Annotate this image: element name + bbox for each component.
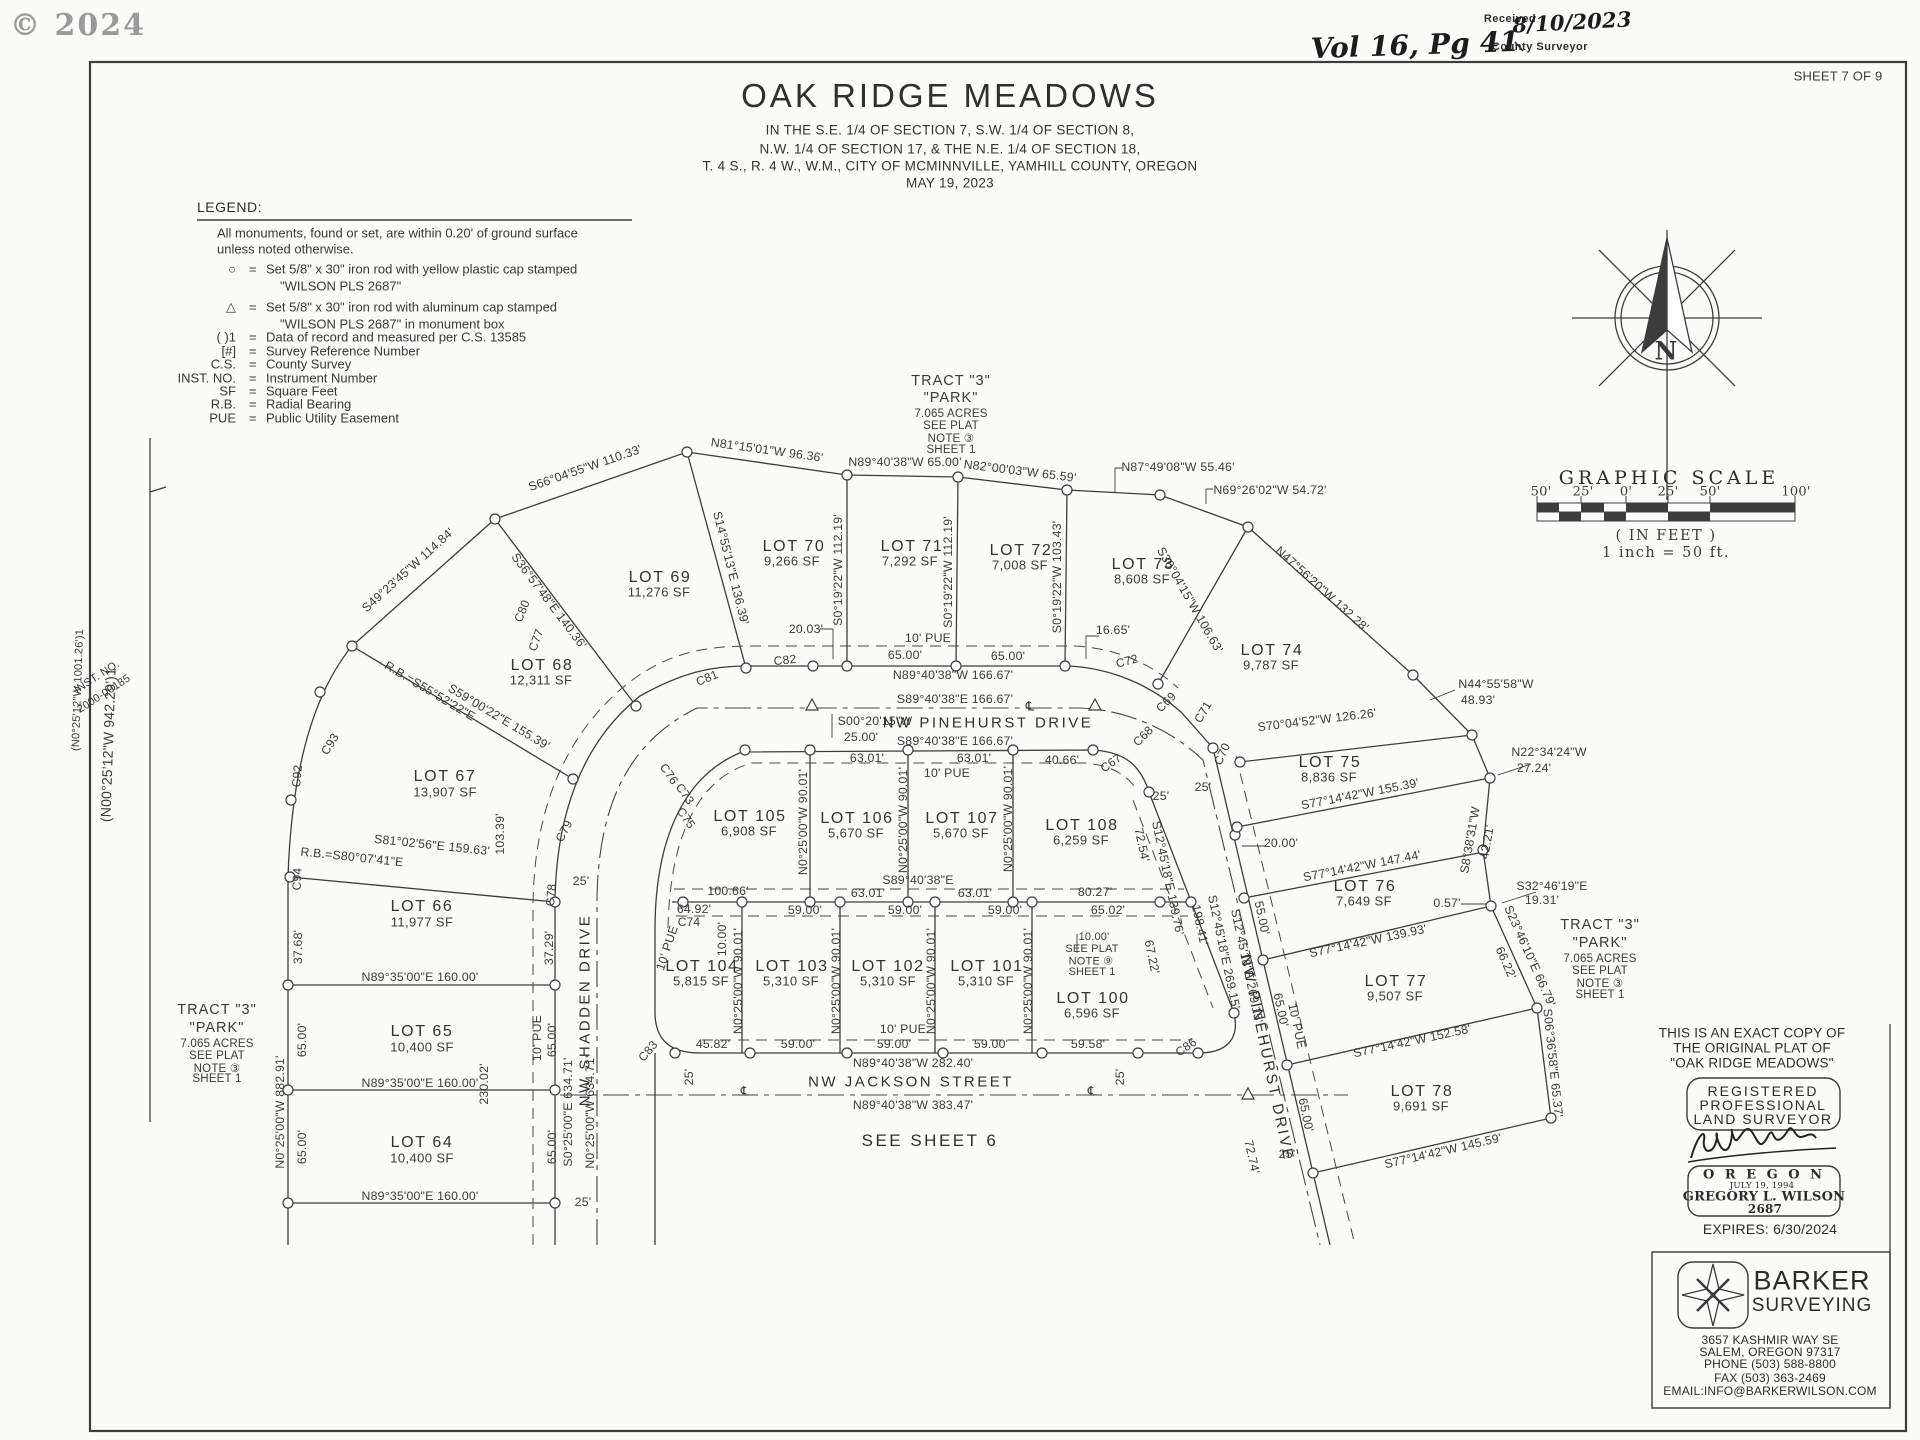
curve-label: C74: [678, 915, 701, 929]
lot-label: LOT 67: [414, 768, 477, 786]
dim-label: 63.01': [957, 751, 991, 765]
legend-eq: =: [249, 262, 257, 277]
bearing-label: N69°26'02"W 54.72': [1213, 483, 1326, 497]
tract-note: 7.065 ACRES: [180, 1038, 253, 1050]
tract-note: "PARK": [1573, 935, 1628, 951]
dim-label: 37.29': [542, 931, 556, 965]
scale-tick: 25': [1658, 485, 1679, 500]
legend-key: C.S.: [211, 357, 236, 372]
legend-symbol-triangle: △: [226, 299, 236, 315]
centerline-symbol: ℄: [1026, 700, 1035, 715]
centerline-symbol: ℄: [741, 1085, 750, 1100]
tract-note: TRACT "3": [177, 1002, 256, 1018]
compass-rose-icon: [1682, 1264, 1744, 1326]
lot-area: 13,907 SF: [413, 785, 477, 800]
dim-label: 20.03': [789, 622, 823, 636]
north-label: N: [1654, 337, 1677, 366]
tract-note: "PARK": [924, 390, 979, 406]
tract-note: TRACT "3": [911, 373, 990, 389]
bearing-label: S32°46'19"E: [1516, 879, 1587, 893]
bearing-label: N0°25'00"W 882.91': [273, 1055, 287, 1168]
bearing-label: N44°55'58"W: [1458, 677, 1533, 691]
lot-area: 6,259 SF: [1053, 833, 1109, 848]
scale-units: ( IN FEET ): [1616, 528, 1717, 544]
tract-note: 7.065 ACRES: [1563, 953, 1636, 965]
dim-label: 59.00': [974, 1037, 1008, 1051]
bearing-label: S0°19'22"W 103.43': [1050, 521, 1064, 634]
tract-note: SHEET 1: [192, 1073, 241, 1085]
dim-label: 25': [1195, 780, 1212, 794]
tract-note: 7.065 ACRES: [914, 408, 987, 420]
bearing-label: N89°40'38"W 166.67': [893, 668, 1013, 682]
dim-label: 59.00': [788, 903, 822, 917]
lot-area: 9,691 SF: [1393, 1099, 1449, 1114]
lot-area: 5,670 SF: [933, 826, 989, 841]
dim-label: 59.00': [888, 903, 922, 917]
plat-note9: SHEET 1: [1068, 966, 1115, 978]
bearing-label: N89°35'00"E 160.00': [362, 1076, 479, 1090]
legend-key: R.B.: [211, 397, 236, 412]
scale-tick: 100': [1781, 485, 1810, 500]
bearing-label: N0°25'00"W 90.01': [796, 769, 810, 875]
exact-copy-note: "OAK RIDGE MEADOWS": [1670, 1056, 1833, 1071]
lot-area: 5,310 SF: [860, 974, 916, 989]
title-subline: N.W. 1/4 OF SECTION 17, & THE N.E. 1/4 O…: [760, 142, 1141, 157]
exact-copy-note: THIS IS AN EXACT COPY OF: [1659, 1026, 1846, 1041]
scale-tick: 25': [1573, 485, 1594, 500]
dim-label: 45.82': [696, 1037, 730, 1051]
curve-label: C78: [543, 883, 559, 907]
bearing-label: N0°25'00"W 90.01': [1021, 928, 1035, 1034]
dim-label: 100.66': [707, 884, 748, 898]
dim-label: 65.00': [991, 649, 1025, 663]
dim-label: 10.00': [715, 922, 729, 956]
lot-area: 11,276 SF: [628, 585, 691, 600]
legend-symbol-circle: ○: [228, 262, 236, 277]
plat-note9: SEE PLAT: [1065, 943, 1118, 955]
pue-label: 10' PUE: [530, 1015, 544, 1061]
lot-area: 9,787 SF: [1243, 658, 1299, 673]
firm-name: SURVEYING: [1752, 1295, 1873, 1317]
tract-note: "PARK": [190, 1020, 245, 1036]
bearing-label: S0°19'22"W 112.19': [831, 514, 845, 626]
bearing-label: N89°35'00"E 160.00': [362, 1189, 479, 1203]
graphic-scale-bar: [1537, 496, 1795, 521]
dim-label: 65.00': [888, 648, 922, 662]
dim-label: 80.27': [1078, 885, 1112, 899]
bearing-label: N0°25'00"W 90.01': [924, 928, 938, 1034]
curve-label: C82: [773, 652, 797, 668]
legend-eq: =: [249, 357, 257, 372]
scale-tick: 50': [1700, 485, 1721, 500]
bearing-label: N0°25'00"W 90.01': [1001, 766, 1015, 872]
dim-label: 65.00': [545, 1023, 559, 1057]
curve-label: C92: [289, 764, 305, 788]
dim-label: 63.01': [851, 886, 885, 900]
legend-text: Set 5/8" x 30" iron rod with aluminum ca…: [266, 300, 557, 315]
bearing-label: S00°20'15"W: [838, 714, 913, 728]
lot-area: 5,815 SF: [673, 974, 729, 989]
legend-eq: =: [249, 397, 257, 412]
lot-area: 7,008 SF: [992, 558, 1048, 573]
exact-copy-note: THE ORIGINAL PLAT OF: [1673, 1041, 1831, 1056]
dim-label: 59.00': [877, 1037, 911, 1051]
legend-text: Data of record and measured per C.S. 135…: [266, 330, 526, 345]
bearing-label: S89°40'38"E 166.67': [897, 692, 1013, 706]
bearing-label: 48.93': [1461, 693, 1495, 707]
dim-label: 65.02': [1091, 903, 1125, 917]
legend-text: Set 5/8" x 30" iron rod with yellow plas…: [266, 262, 577, 277]
legend-text: Public Utility Easement: [266, 411, 399, 426]
legend-eq: =: [249, 300, 257, 315]
dim-label: 65.00': [295, 1023, 309, 1057]
dim-label: 25': [1279, 1147, 1296, 1161]
tract-note: NOTE ③: [1577, 976, 1624, 990]
bearing-label: S0°19'22"W 112.19': [941, 516, 955, 628]
dim-label: 59.00': [781, 1037, 815, 1051]
stamp-expires: EXPIRES: 6/30/2024: [1703, 1221, 1837, 1237]
lot-area: 6,908 SF: [721, 824, 777, 839]
lot-area: 6,596 SF: [1064, 1006, 1120, 1021]
dim-label: 65.00': [295, 1130, 309, 1164]
curve-label: C94: [290, 867, 305, 890]
lot-area: 5,310 SF: [763, 974, 819, 989]
firm-phone: PHONE (503) 588-8800: [1704, 1357, 1836, 1371]
dim-label: 25': [573, 874, 590, 888]
lot-label: LOT 66: [391, 898, 454, 916]
dim-label: 25': [1153, 789, 1170, 803]
plat-note9: 10.00': [1079, 931, 1110, 943]
bearing-label: S89°40'38"E: [882, 873, 953, 887]
dim-label: 65.00': [545, 1130, 559, 1164]
legend-key: ( )1: [217, 330, 237, 345]
lot-area: 11,977 SF: [391, 915, 454, 930]
stamp-number: 2687: [1748, 1202, 1782, 1216]
pue-label: 10' PUE: [880, 1022, 926, 1036]
legend-title: LEGEND:: [197, 199, 262, 215]
dim-label: 20.00': [1264, 836, 1298, 850]
legend-text: "WILSON PLS 2687": [280, 279, 401, 294]
bearing-label: 27.24': [1517, 761, 1551, 775]
copyright-watermark: © 2024: [10, 8, 146, 43]
legend-intro: unless noted otherwise.: [217, 242, 354, 257]
bearing-label: N87°49'08"W 55.46': [1121, 460, 1234, 474]
dim-label: 37.68': [291, 930, 305, 964]
bearing-label: N0°25'00"W 90.01': [829, 928, 843, 1034]
legend-text: County Survey: [266, 357, 351, 372]
bearing-label: S89°40'38"E 166.67': [897, 734, 1013, 748]
pue-label: 10' PUE: [924, 766, 970, 780]
dim-label: 25': [575, 1195, 592, 1209]
dim-label: 59.58': [1071, 1037, 1105, 1051]
plat-sheet: © 2024 Vol 16, Pg 41 Received 8/10/2023 …: [0, 0, 1920, 1440]
bearing-label: N0°25'00"W 90.01': [731, 928, 745, 1034]
lot-area: 10,400 SF: [390, 1040, 454, 1055]
dim-label: 19.31': [1525, 893, 1559, 907]
title-subline: MAY 19, 2023: [906, 176, 994, 191]
bearing-label: N0°25'00"W 90.01': [896, 767, 910, 873]
tract-note: SHEET 1: [1575, 989, 1624, 1001]
received-office: County Surveyor: [1492, 41, 1588, 53]
scale-tick: 0': [1620, 485, 1632, 500]
tract-note: NOTE ③: [928, 431, 975, 445]
pue-label: 10' PUE: [905, 631, 951, 645]
scale-tick: 50': [1531, 485, 1552, 500]
street-jackson: NW JACKSON STREET: [808, 1074, 1014, 1091]
lot-area: 7,292 SF: [882, 554, 938, 569]
legend-text: Radial Bearing: [266, 397, 351, 412]
bearing-label: N89°40'38"W 65.00': [848, 455, 961, 469]
dim-label: 16.65': [1096, 623, 1130, 637]
lot-area: 8,608 SF: [1114, 572, 1170, 587]
legend-key: PUE: [209, 411, 236, 426]
left-property-line: [150, 438, 166, 1122]
dim-label: 64.92': [677, 902, 711, 916]
street-pinehurst-top: NW PINEHURST DRIVE: [883, 715, 1094, 732]
sheet-number: SHEET 7 OF 9: [1794, 69, 1883, 84]
bearing-label: N89°40'38"W 282.40': [853, 1056, 973, 1070]
lot-label: LOT 65: [391, 1023, 454, 1041]
see-sheet-note: SEE SHEET 6: [862, 1131, 999, 1151]
page-title: OAK RIDGE MEADOWS: [741, 77, 1159, 115]
scale-ratio: 1 inch = 50 ft.: [1602, 545, 1730, 561]
tract-note: TRACT "3": [1560, 917, 1639, 933]
legend-eq: =: [249, 411, 257, 426]
title-subline: T. 4 S., R. 4 W., W.M., CITY OF MCMINNVI…: [703, 159, 1198, 174]
dim-label: 25': [1113, 1069, 1127, 1086]
lot-area: 5,310 SF: [958, 974, 1014, 989]
lot-area: 5,670 SF: [828, 826, 884, 841]
firm-name: BARKER: [1753, 1266, 1870, 1297]
lot-area: 9,266 SF: [764, 554, 820, 569]
bearing-label: N89°35'00"E 160.00': [362, 970, 479, 984]
legend-intro: All monuments, found or set, are within …: [217, 226, 578, 241]
bearing-label: N89°40'38"W 383.47': [853, 1098, 973, 1112]
dim-label: 40.66': [1045, 753, 1079, 767]
dim-label: 0.57': [1433, 896, 1460, 910]
legend-eq: =: [249, 330, 257, 345]
lot-area: 9,507 SF: [1367, 989, 1423, 1004]
lot-area: 10,400 SF: [390, 1151, 454, 1166]
bearing-label: N22°34'24"W: [1511, 745, 1586, 759]
dim-label: 25': [682, 1069, 696, 1086]
dim-label: 59.00': [988, 903, 1022, 917]
stamp-line: LAND SURVEYOR: [1693, 1111, 1832, 1127]
firm-email: EMAIL:INFO@BARKERWILSON.COM: [1663, 1384, 1876, 1398]
dim-label: 63.01': [958, 886, 992, 900]
dim-label: 63.01': [850, 751, 884, 765]
dim-label: 103.39': [493, 813, 507, 854]
lot-area: 12,311 SF: [510, 673, 573, 688]
dim-label: 230.02': [477, 1063, 491, 1104]
centerline-symbol: ℄: [1088, 1085, 1097, 1100]
dim-label: 25.00': [844, 730, 878, 744]
bearing-label: S0°25'00"E 634.71': [561, 1057, 575, 1166]
lot-label: LOT 64: [391, 1134, 454, 1152]
bearing-label: N0°25'00"W 634.71': [583, 1055, 597, 1168]
lot-area: 8,836 SF: [1301, 770, 1357, 785]
title-subline: IN THE S.E. 1/4 OF SECTION 7, S.W. 1/4 O…: [766, 123, 1135, 138]
tract-note: SHEET 1: [926, 444, 975, 456]
firm-fax: FAX (503) 363-2469: [1714, 1371, 1826, 1385]
lot-area: 7,649 SF: [1336, 894, 1392, 909]
